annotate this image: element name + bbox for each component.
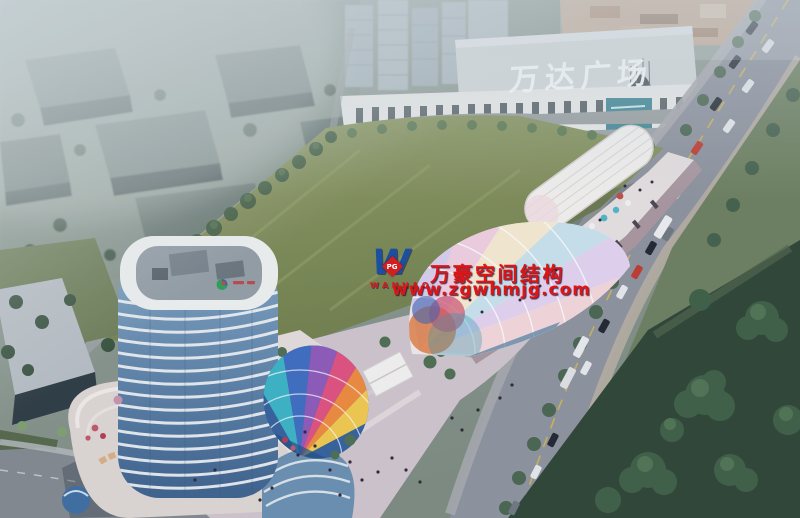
aerial-rendering: 万达广场 [0,0,800,518]
scene-canvas: 万达广场 [0,0,800,518]
haze-overlays [0,0,800,518]
